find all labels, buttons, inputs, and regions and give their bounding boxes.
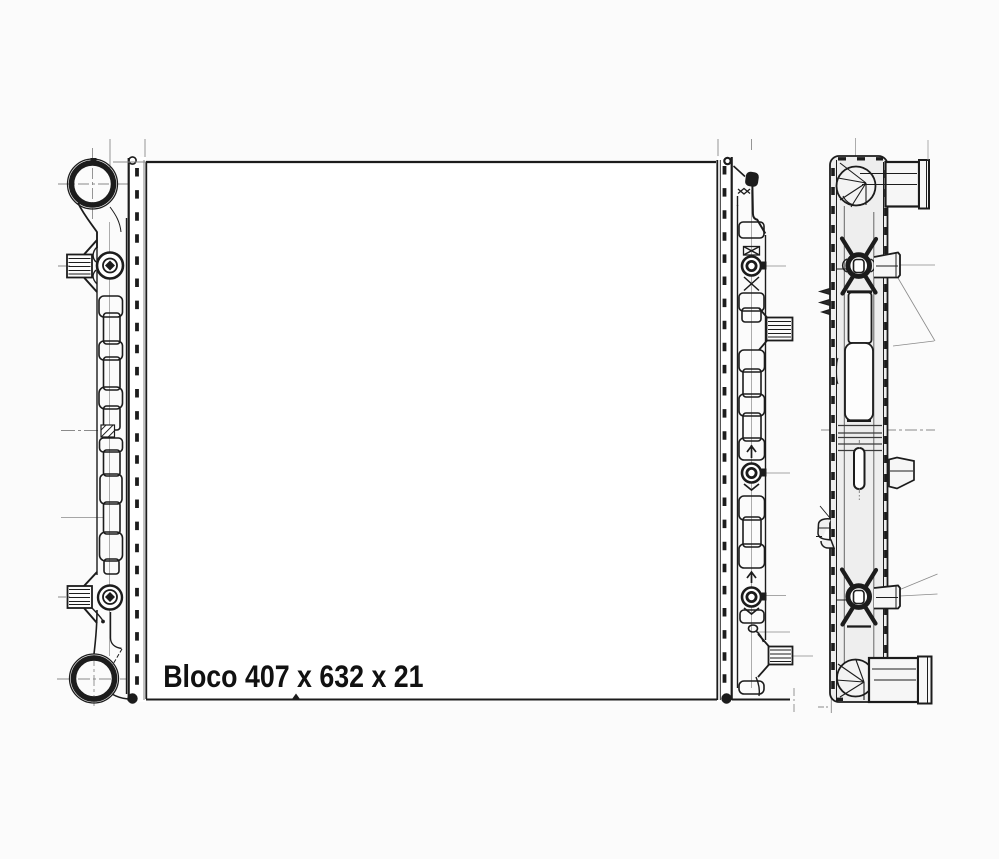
svg-text:Bloco 407 x 632 x 21: Bloco 407 x 632 x 21	[163, 660, 423, 694]
